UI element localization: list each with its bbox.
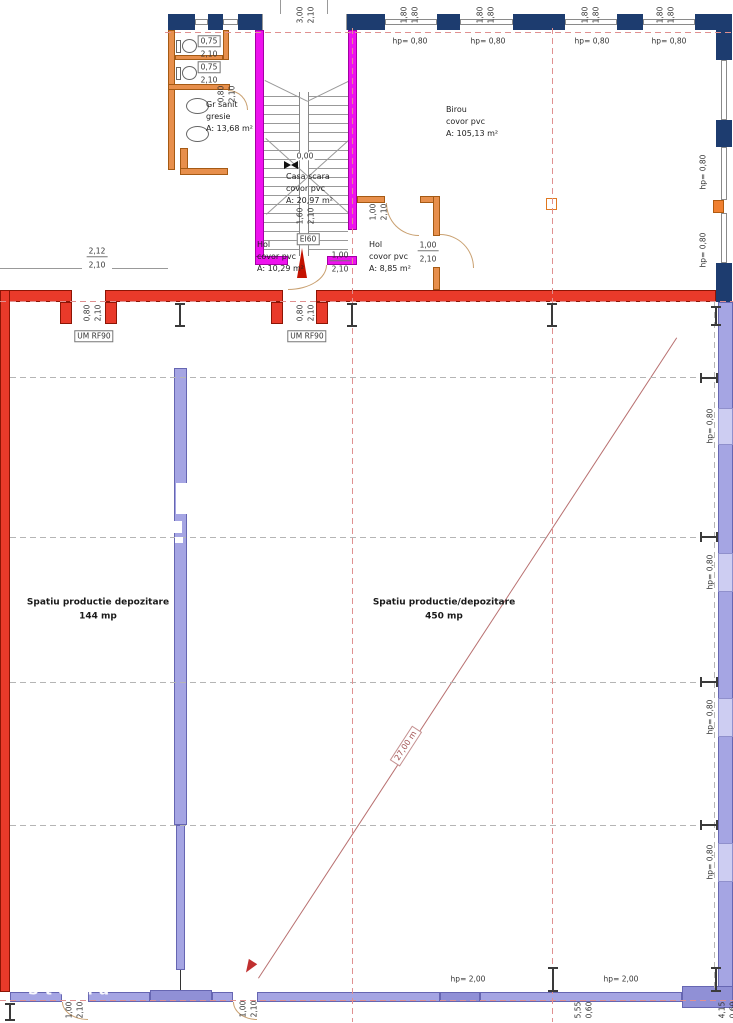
dim-label: hp= 0,80 (706, 700, 714, 735)
dim-label: 2,10 (94, 305, 102, 322)
dim-label: covor pvc (257, 253, 296, 261)
fire-rating-label: EI60 (297, 233, 320, 245)
dim-label: 1,80 (476, 7, 484, 24)
watermark-fragment (175, 537, 183, 543)
boundary-line (0, 268, 82, 269)
dim-label: 3,00 (296, 7, 304, 24)
room-label-spatiu-450: Spatiu productie/depozitare (373, 599, 515, 608)
dim-label: hp= 0,80 (699, 233, 707, 268)
toilet-icon (176, 40, 181, 53)
dim-label: A: 105,13 m² (446, 130, 498, 138)
door-arc (386, 203, 419, 236)
dim-label: 0,80 (83, 305, 91, 322)
dim-label: hp= 0,80 (706, 409, 714, 444)
dim-label: 4,15 (718, 1002, 726, 1019)
measurement-label: 27,00 m (390, 725, 423, 766)
dim-label: 1,80 (581, 7, 589, 24)
dim-label: gresie (206, 113, 230, 121)
room-label-hol-2: Hol (369, 241, 382, 249)
wall-stair (255, 30, 264, 265)
toilet-icon (176, 67, 181, 80)
jamb-line (346, 14, 347, 30)
dim-label: 2,10 (201, 50, 218, 58)
grid-tick (552, 967, 554, 992)
dim-label: 1,80 (667, 7, 675, 24)
dim-label: 2,10 (307, 208, 315, 225)
wall-hall (433, 267, 440, 290)
grid-tick (179, 303, 181, 327)
dim-label: 0,60 (729, 1002, 733, 1019)
wall-top (208, 14, 223, 30)
wall-fire (105, 302, 117, 324)
watermark-fragment (176, 483, 188, 514)
watermark-fragment (172, 521, 182, 533)
diagonal-arrowhead-icon (242, 959, 257, 975)
dim-label: hp= 2,00 (451, 975, 486, 983)
level-marker-icon (291, 161, 298, 169)
dim-label: 1,00 (65, 1002, 73, 1019)
wall-right-top (716, 263, 732, 302)
window-right (721, 60, 727, 120)
wall-interior (174, 368, 187, 825)
dim-label: 2,10 (420, 255, 437, 263)
dim-label: 0,75 (198, 35, 221, 47)
floor-plan: 3,002,101,801,801,801,801,801,801,801,80… (0, 0, 733, 1023)
dim-label: 1,80 (411, 7, 419, 24)
dim-label: 1,00 (369, 204, 377, 221)
dim-label: 144 mp (79, 613, 117, 622)
dim-label: hp= 0,80 (393, 37, 428, 45)
wall-top (513, 14, 565, 30)
grid-tick (9, 1003, 11, 1021)
wall-fire (60, 302, 72, 324)
grid-line (352, 28, 353, 1022)
grid-line (552, 28, 553, 1022)
grid-tick (715, 306, 717, 326)
fire-door-label: UM RF90 (287, 330, 326, 342)
wall-hall (433, 196, 440, 236)
watermark: Storia (28, 983, 115, 998)
room-label-gr-sanit: Gr sanit (206, 101, 238, 109)
window-right-low (718, 698, 733, 737)
grid-tick (700, 681, 718, 683)
wall-right-top (716, 120, 732, 147)
exit-arrow-icon (297, 248, 307, 278)
grid-line (10, 377, 716, 378)
dim-label: 2,10 (76, 1002, 84, 1019)
boundary-line (112, 268, 168, 269)
entry-step-line (327, 0, 328, 14)
wall-interior (176, 825, 185, 970)
dim-label: 2,10 (89, 261, 106, 269)
dim-label: hp= 2,00 (604, 975, 639, 983)
window-top (195, 19, 208, 25)
grid-line (0, 301, 733, 302)
dim-label: 1,80 (592, 7, 600, 24)
dim-label: hp= 0,80 (706, 845, 714, 880)
wall-interior-line (180, 970, 181, 992)
toilet-bowl-icon (182, 39, 197, 53)
grid-tick (700, 824, 718, 826)
dim-label: hp= 0,80 (699, 155, 707, 190)
dim-label: 450 mp (425, 613, 463, 622)
wall-fire (271, 302, 283, 324)
wall-top (617, 14, 643, 30)
room-label-spatiu-144: Spatiu productie depozitare (27, 599, 169, 608)
dim-label: hp= 0,80 (652, 37, 687, 45)
dim-label: A: 20,97 m² (286, 197, 333, 205)
jamb-line (262, 14, 263, 30)
door-arc (440, 234, 474, 268)
grid-tick (715, 967, 717, 992)
dim-label: covor pvc (286, 185, 325, 193)
level-marker-icon (284, 161, 291, 169)
grid-tick (351, 303, 353, 327)
dim-label: 1,80 (487, 7, 495, 24)
dim-label: 0,60 (585, 1002, 593, 1019)
dim-label: A: 8,85 m² (369, 265, 411, 273)
dim-label: A: 13,68 m² (206, 125, 253, 133)
dim-label: 1,00 (330, 251, 351, 261)
grid-line (0, 1000, 733, 1001)
dim-label: 5,55 (574, 1002, 582, 1019)
dim-label: 1,80 (400, 7, 408, 24)
dim-label: covor pvc (446, 118, 485, 126)
grid-line (10, 825, 716, 826)
room-label-hol-1: Hol (257, 241, 270, 249)
dim-label: 2,10 (307, 7, 315, 24)
wall-top (437, 14, 460, 30)
dim-label: 2,10 (250, 1001, 258, 1018)
grid-tick (700, 377, 718, 379)
dim-label: A: 10,29 m² (257, 265, 304, 273)
dim-label: hp= 0,80 (575, 37, 610, 45)
window-right-low (718, 553, 733, 592)
wall-top (238, 14, 262, 30)
wall-right-top (716, 14, 732, 60)
grid-tick (551, 303, 553, 327)
wall-right (718, 302, 733, 992)
dim-label: 0,75 (198, 61, 221, 73)
dim-label: 1,00 (418, 241, 439, 251)
wall-hall (357, 196, 385, 203)
grid-line (10, 537, 716, 538)
column-orange (713, 200, 724, 213)
dim-label: 2,12 (87, 247, 108, 257)
dim-label: 1,80 (656, 7, 664, 24)
window-right (721, 213, 727, 263)
window-top (223, 19, 238, 25)
dim-label: 2,10 (332, 265, 349, 273)
wall-sanitary (223, 30, 229, 60)
window-right-low (718, 408, 733, 445)
grid-line (10, 682, 716, 683)
entry-step-line (280, 0, 281, 14)
dim-label: hp= 0,80 (706, 555, 714, 590)
window-right (721, 147, 727, 200)
grid-line (165, 32, 733, 33)
wall-sanitary (180, 168, 228, 175)
dim-label: 2,10 (380, 204, 388, 221)
wall-top (168, 14, 195, 30)
diagonal-measure-line (258, 338, 677, 979)
dim-label: 0,80 (296, 305, 304, 322)
wall-fire (316, 302, 328, 324)
grid-tick (700, 536, 718, 538)
wall-sanitary (168, 30, 175, 170)
window-right-low (718, 843, 733, 882)
dim-label: 2,10 (307, 305, 315, 322)
grid-line (714, 302, 715, 992)
toilet-bowl-icon (182, 66, 197, 80)
wall-left (0, 290, 10, 992)
dim-label: hp= 0,80 (471, 37, 506, 45)
room-label-birou: Birou (446, 106, 467, 114)
dim-label: covor pvc (369, 253, 408, 261)
level-label: 0,00 (296, 152, 315, 160)
fire-door-label: UM RF90 (74, 330, 113, 342)
room-label-casa-scara: Casa scara (286, 173, 330, 181)
dim-label: 1,60 (296, 208, 304, 225)
dim-label: 2,10 (201, 76, 218, 84)
dim-label: 1,00 (239, 1001, 247, 1018)
